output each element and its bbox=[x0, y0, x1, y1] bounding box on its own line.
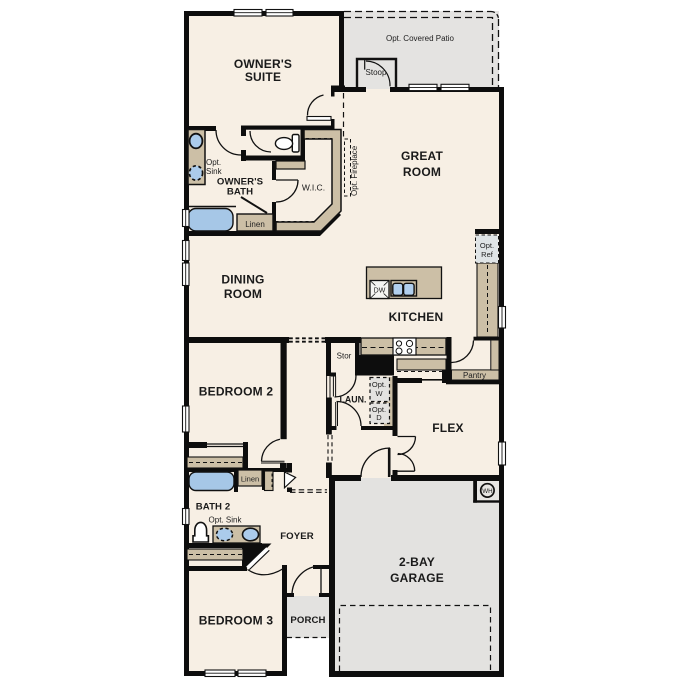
svg-text:DW: DW bbox=[374, 288, 386, 295]
svg-text:Sink: Sink bbox=[206, 167, 223, 176]
svg-text:LAUN.: LAUN. bbox=[340, 395, 367, 405]
svg-text:SUITE: SUITE bbox=[245, 70, 281, 84]
svg-text:KITCHEN: KITCHEN bbox=[389, 310, 444, 324]
svg-text:FOYER: FOYER bbox=[280, 531, 314, 542]
svg-text:PORCH: PORCH bbox=[290, 615, 325, 626]
svg-text:2-BAY: 2-BAY bbox=[399, 555, 435, 569]
svg-text:GREAT: GREAT bbox=[401, 149, 444, 163]
svg-text:D: D bbox=[376, 413, 382, 422]
svg-text:Opt.: Opt. bbox=[480, 241, 494, 250]
svg-text:Stor: Stor bbox=[337, 352, 352, 361]
svg-text:WH: WH bbox=[482, 488, 492, 495]
svg-text:DINING: DINING bbox=[221, 273, 264, 287]
svg-text:OWNER'S: OWNER'S bbox=[234, 57, 292, 71]
svg-text:GARAGE: GARAGE bbox=[390, 571, 444, 585]
svg-text:Opt. Sink: Opt. Sink bbox=[209, 516, 243, 525]
svg-text:ROOM: ROOM bbox=[224, 287, 262, 301]
svg-text:Linen: Linen bbox=[241, 475, 259, 484]
svg-text:BATH: BATH bbox=[227, 187, 253, 198]
svg-text:Opt. Fireplace: Opt. Fireplace bbox=[350, 145, 359, 196]
svg-text:Linen: Linen bbox=[245, 220, 265, 229]
svg-text:BEDROOM 3: BEDROOM 3 bbox=[199, 614, 274, 628]
svg-text:Ref: Ref bbox=[481, 250, 494, 259]
svg-text:W: W bbox=[375, 389, 383, 398]
svg-text:Pantry: Pantry bbox=[463, 371, 486, 380]
svg-text:W.I.C.: W.I.C. bbox=[302, 183, 325, 193]
svg-text:Stoop: Stoop bbox=[366, 68, 387, 77]
svg-text:FLEX: FLEX bbox=[432, 421, 463, 435]
svg-text:Opt.: Opt. bbox=[206, 158, 221, 167]
svg-text:Opt. Covered Patio: Opt. Covered Patio bbox=[386, 34, 455, 43]
svg-text:Opt.: Opt. bbox=[372, 380, 386, 389]
svg-text:BATH 2: BATH 2 bbox=[196, 502, 231, 513]
svg-text:BEDROOM 2: BEDROOM 2 bbox=[199, 385, 274, 399]
svg-text:ROOM: ROOM bbox=[403, 165, 441, 179]
